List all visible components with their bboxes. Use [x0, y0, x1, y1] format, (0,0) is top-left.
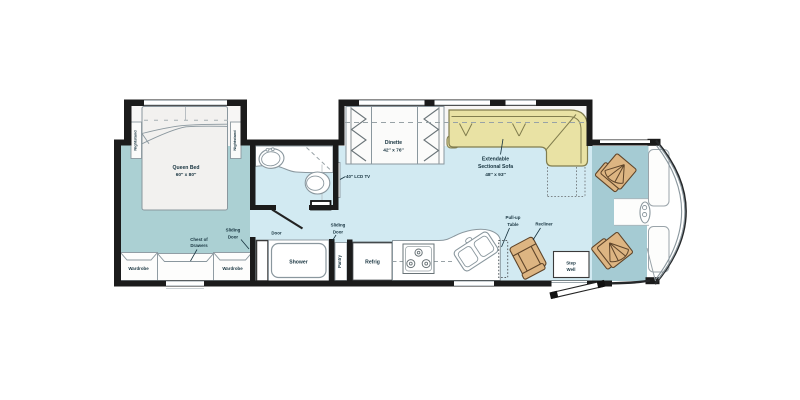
svg-text:Door: Door — [333, 230, 344, 235]
svg-text:Door: Door — [271, 231, 282, 236]
svg-text:Sliding: Sliding — [226, 228, 241, 233]
svg-text:42″ x 76″: 42″ x 76″ — [383, 148, 404, 154]
svg-text:Well: Well — [567, 267, 576, 272]
svg-text:Nightstand: Nightstand — [232, 130, 237, 151]
svg-text:Step: Step — [566, 261, 576, 266]
svg-text:60″ x 80″: 60″ x 80″ — [176, 172, 197, 178]
svg-text:Refrig: Refrig — [365, 260, 380, 266]
svg-text:Pantry: Pantry — [337, 254, 342, 267]
svg-text:Sectional Sofa: Sectional Sofa — [478, 164, 513, 170]
svg-text:Table: Table — [507, 222, 519, 227]
svg-text:Extendable: Extendable — [482, 157, 509, 163]
svg-text:Shower: Shower — [289, 260, 307, 266]
svg-text:Nightstand: Nightstand — [132, 130, 137, 151]
svg-text:Door: Door — [228, 235, 239, 240]
svg-text:Sliding: Sliding — [331, 223, 346, 228]
svg-text:Chest of: Chest of — [190, 237, 208, 242]
svg-text:Wardrobe: Wardrobe — [222, 266, 243, 271]
svg-text:Pull-up: Pull-up — [506, 215, 521, 220]
svg-text:48″ x 93″: 48″ x 93″ — [485, 172, 506, 178]
svg-text:40″ LCD TV: 40″ LCD TV — [346, 174, 370, 179]
svg-text:Recliner: Recliner — [535, 222, 553, 227]
svg-text:Wardrobe: Wardrobe — [128, 266, 149, 271]
svg-text:Drawers: Drawers — [190, 243, 208, 248]
svg-text:Queen Bed: Queen Bed — [173, 165, 200, 171]
svg-text:Dinette: Dinette — [385, 140, 402, 146]
